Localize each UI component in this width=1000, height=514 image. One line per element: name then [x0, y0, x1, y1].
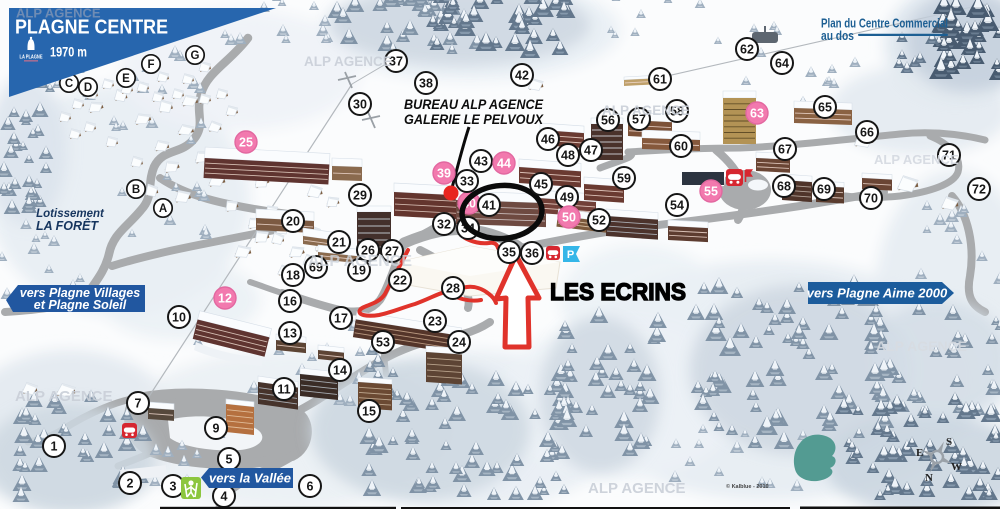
- svg-text:41: 41: [482, 199, 496, 213]
- svg-text:23: 23: [428, 315, 442, 329]
- svg-text:25: 25: [239, 136, 253, 150]
- svg-text:38: 38: [419, 77, 433, 91]
- svg-text:10: 10: [172, 311, 186, 325]
- svg-text:13: 13: [283, 327, 297, 341]
- svg-text:LES ECRINS: LES ECRINS: [550, 279, 686, 306]
- svg-text:32: 32: [437, 218, 451, 232]
- svg-text:vers la Vallée: vers la Vallée: [209, 471, 291, 486]
- svg-text:68: 68: [777, 180, 791, 194]
- svg-text:P: P: [567, 249, 574, 261]
- svg-text:36: 36: [525, 247, 539, 261]
- svg-text:1970 m: 1970 m: [50, 45, 87, 60]
- svg-text:54: 54: [670, 199, 684, 213]
- svg-text:ALP AGENCE: ALP AGENCE: [602, 103, 690, 118]
- svg-text:B: B: [132, 184, 140, 196]
- svg-text:6: 6: [307, 480, 314, 494]
- svg-text:67: 67: [778, 143, 792, 157]
- svg-text:F: F: [147, 59, 154, 71]
- svg-text:A: A: [159, 203, 167, 215]
- svg-text:48: 48: [561, 149, 575, 163]
- svg-text:ALP AGENCE: ALP AGENCE: [304, 54, 392, 69]
- svg-text:66: 66: [860, 126, 874, 140]
- svg-text:28: 28: [446, 282, 460, 296]
- svg-text:3: 3: [170, 480, 177, 494]
- svg-text:W: W: [951, 461, 962, 473]
- svg-text:LA FORÊT: LA FORÊT: [36, 218, 99, 233]
- svg-text:E: E: [122, 73, 130, 85]
- svg-text:GALERIE LE PELVOUX: GALERIE LE PELVOUX: [404, 112, 544, 127]
- svg-text:60: 60: [674, 140, 688, 154]
- svg-text:55: 55: [704, 185, 718, 199]
- svg-text:2: 2: [127, 477, 134, 491]
- svg-text:21: 21: [332, 236, 346, 250]
- svg-text:72: 72: [972, 183, 986, 197]
- svg-text:65: 65: [818, 101, 832, 115]
- svg-text:G: G: [191, 50, 200, 62]
- svg-text:ALP AGENCE: ALP AGENCE: [588, 480, 686, 497]
- svg-text:7: 7: [135, 397, 142, 411]
- svg-text:43: 43: [474, 155, 488, 169]
- svg-text:ALP AGENCE: ALP AGENCE: [876, 338, 967, 354]
- svg-text:5: 5: [226, 453, 233, 467]
- svg-text:22: 22: [393, 274, 407, 288]
- svg-text:12: 12: [218, 292, 232, 306]
- svg-text:30: 30: [353, 98, 367, 112]
- svg-text:15: 15: [362, 405, 376, 419]
- svg-text:20: 20: [286, 215, 300, 229]
- svg-text:ALP AGENCE: ALP AGENCE: [15, 388, 113, 405]
- svg-text:E: E: [916, 447, 923, 459]
- svg-text:1: 1: [51, 440, 58, 454]
- svg-text:4: 4: [221, 490, 228, 504]
- svg-text:49: 49: [560, 191, 574, 205]
- svg-text:33: 33: [460, 175, 474, 189]
- svg-text:vers Plagne Aime 2000: vers Plagne Aime 2000: [807, 286, 948, 301]
- svg-text:70: 70: [864, 192, 878, 206]
- svg-text:© Kalblue - 2010: © Kalblue - 2010: [726, 483, 769, 490]
- svg-text:44: 44: [497, 157, 511, 171]
- svg-text:62: 62: [740, 43, 754, 57]
- svg-text:D: D: [84, 82, 92, 94]
- svg-text:61: 61: [653, 73, 667, 87]
- svg-text:9: 9: [213, 422, 220, 436]
- svg-text:S: S: [946, 436, 952, 448]
- svg-text:14: 14: [333, 364, 347, 378]
- svg-text:64: 64: [775, 57, 789, 71]
- svg-text:69: 69: [817, 183, 831, 197]
- svg-text:et Plagne Soleil: et Plagne Soleil: [34, 298, 127, 312]
- svg-text:ALP AGENCE: ALP AGENCE: [874, 152, 959, 167]
- svg-text:au dos: au dos: [821, 29, 854, 43]
- svg-text:LA PLAGNE: LA PLAGNE: [20, 55, 43, 61]
- svg-text:46: 46: [541, 133, 555, 147]
- svg-text:16: 16: [283, 295, 297, 309]
- svg-text:11: 11: [277, 383, 290, 397]
- svg-text:35: 35: [502, 246, 516, 260]
- svg-text:39: 39: [437, 167, 451, 181]
- svg-text:24: 24: [452, 336, 466, 350]
- svg-text:29: 29: [353, 189, 367, 203]
- svg-text:18: 18: [286, 269, 300, 283]
- svg-text:17: 17: [334, 312, 348, 326]
- svg-text:42: 42: [515, 69, 529, 83]
- svg-text:BUREAU ALP AGENCE: BUREAU ALP AGENCE: [404, 97, 544, 112]
- svg-text:53: 53: [376, 336, 390, 350]
- svg-text:C: C: [65, 78, 73, 90]
- svg-text:N: N: [925, 472, 933, 484]
- svg-text:52: 52: [592, 214, 606, 228]
- svg-text:PLAGNE CENTRE: PLAGNE CENTRE: [15, 16, 168, 39]
- svg-text:63: 63: [750, 107, 764, 121]
- svg-text:45: 45: [534, 178, 548, 192]
- svg-text:ALP AGENCE: ALP AGENCE: [308, 253, 412, 270]
- svg-text:50: 50: [562, 211, 576, 225]
- svg-text:47: 47: [584, 144, 598, 158]
- svg-text:59: 59: [617, 172, 631, 186]
